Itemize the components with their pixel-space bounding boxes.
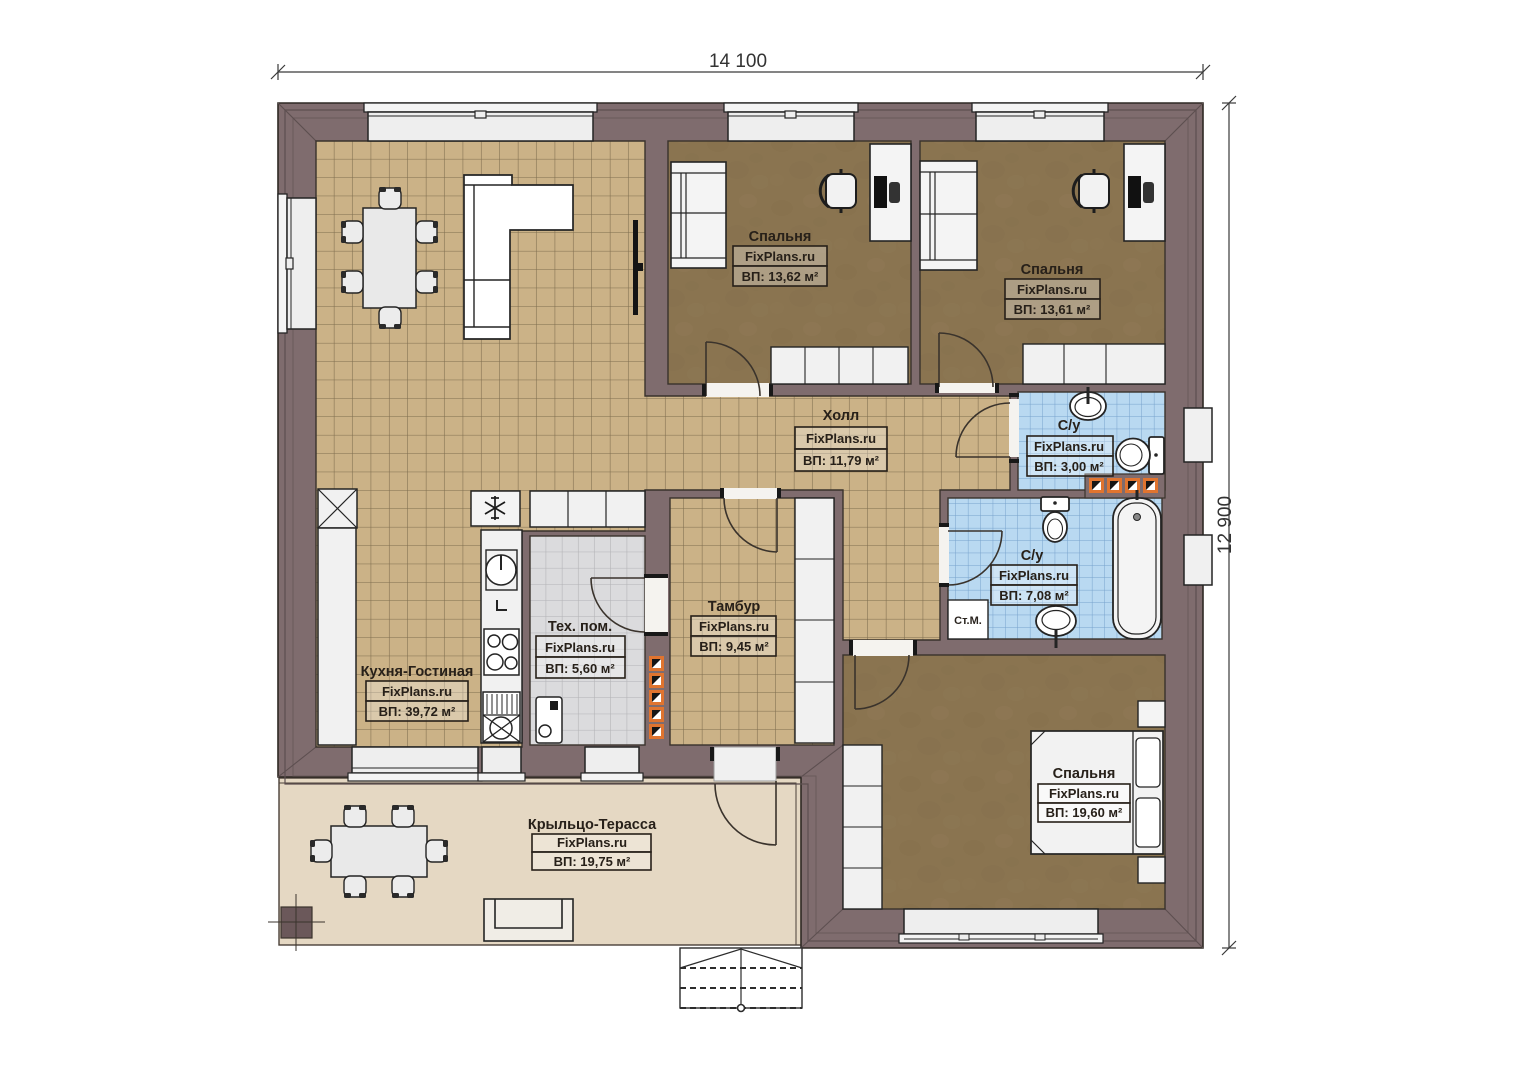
svg-text:ВП: 7,08 м²: ВП: 7,08 м² bbox=[999, 588, 1069, 603]
svg-text:Спальня: Спальня bbox=[749, 229, 812, 245]
svg-text:ВП: 39,72 м²: ВП: 39,72 м² bbox=[379, 704, 456, 719]
svg-text:FixPlans.ru: FixPlans.ru bbox=[545, 640, 615, 655]
svg-text:14 100: 14 100 bbox=[709, 51, 767, 72]
svg-text:FixPlans.ru: FixPlans.ru bbox=[557, 835, 627, 850]
svg-text:Спальня: Спальня bbox=[1053, 766, 1116, 782]
svg-text:ВП: 13,61 м²: ВП: 13,61 м² bbox=[1014, 302, 1091, 317]
svg-text:С/у: С/у bbox=[1058, 418, 1081, 434]
svg-text:С/у: С/у bbox=[1021, 548, 1044, 564]
svg-text:FixPlans.ru: FixPlans.ru bbox=[1034, 439, 1104, 454]
svg-text:Тех. пом.: Тех. пом. bbox=[548, 619, 612, 635]
svg-text:ВП: 3,00 м²: ВП: 3,00 м² bbox=[1034, 459, 1104, 474]
svg-text:12 900: 12 900 bbox=[1215, 496, 1236, 554]
svg-text:Холл: Холл bbox=[823, 408, 859, 424]
svg-text:ВП: 13,62 м²: ВП: 13,62 м² bbox=[742, 269, 819, 284]
svg-text:ВП: 19,75 м²: ВП: 19,75 м² bbox=[554, 854, 631, 869]
svg-text:ВП: 19,60 м²: ВП: 19,60 м² bbox=[1046, 805, 1123, 820]
svg-text:FixPlans.ru: FixPlans.ru bbox=[1049, 786, 1119, 801]
svg-text:Спальня: Спальня bbox=[1021, 262, 1084, 278]
svg-text:FixPlans.ru: FixPlans.ru bbox=[999, 568, 1069, 583]
svg-text:FixPlans.ru: FixPlans.ru bbox=[806, 431, 876, 446]
svg-text:FixPlans.ru: FixPlans.ru bbox=[1017, 282, 1087, 297]
svg-text:Ст.М.: Ст.М. bbox=[954, 615, 982, 627]
svg-text:ВП: 9,45 м²: ВП: 9,45 м² bbox=[699, 639, 769, 654]
svg-text:Крыльцо-Терасса: Крыльцо-Терасса bbox=[528, 817, 657, 833]
svg-text:FixPlans.ru: FixPlans.ru bbox=[699, 619, 769, 634]
svg-text:ВП: 5,60 м²: ВП: 5,60 м² bbox=[545, 661, 615, 676]
svg-text:Тамбур: Тамбур bbox=[708, 599, 761, 615]
svg-text:FixPlans.ru: FixPlans.ru bbox=[382, 684, 452, 699]
svg-text:FixPlans.ru: FixPlans.ru bbox=[745, 249, 815, 264]
svg-text:ВП: 11,79 м²: ВП: 11,79 м² bbox=[803, 453, 880, 468]
svg-text:Кухня-Гостиная: Кухня-Гостиная bbox=[361, 664, 474, 680]
